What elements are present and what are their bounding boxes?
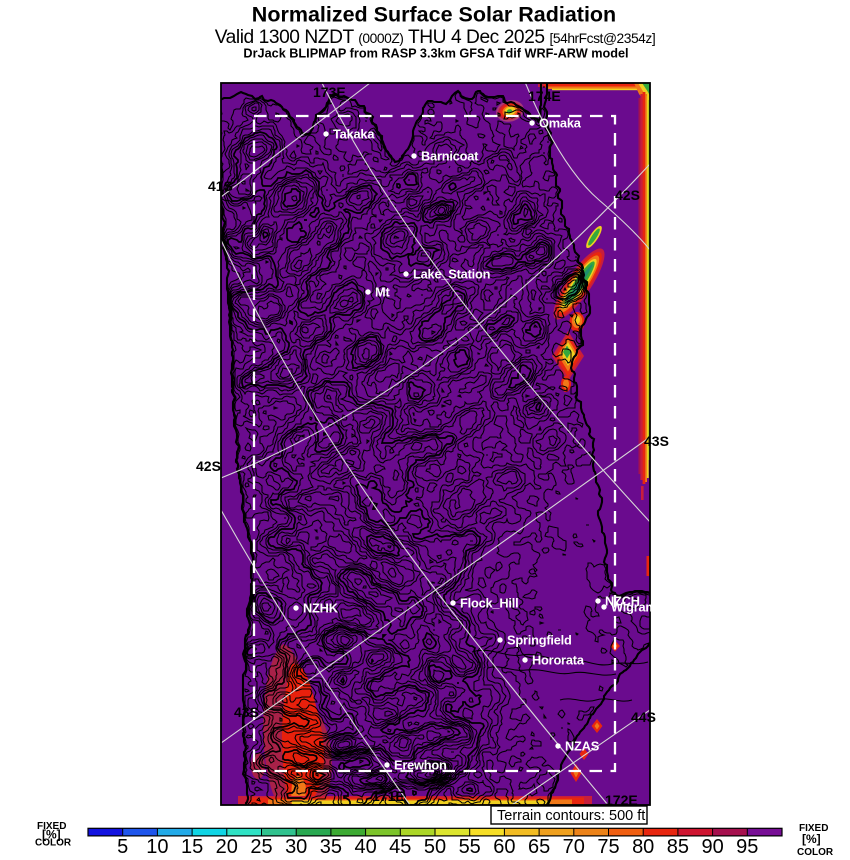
svg-text:Barnicoat: Barnicoat <box>421 149 479 164</box>
svg-text:60: 60 <box>493 836 515 858</box>
svg-text:Valid 1300 NZDT (0000Z) THU 4: Valid 1300 NZDT (0000Z) THU 4 Dec 2025 [… <box>215 27 655 48</box>
svg-text:DrJack BLIPMAP from RASP 3.3km: DrJack BLIPMAP from RASP 3.3km GFSA Tdif… <box>243 47 628 61</box>
svg-text:173E: 173E <box>313 84 346 100</box>
svg-text:35: 35 <box>320 836 342 858</box>
svg-text:Erewhon: Erewhon <box>394 758 447 773</box>
svg-text:80: 80 <box>632 836 654 858</box>
svg-text:10: 10 <box>146 836 168 858</box>
svg-text:Wigram: Wigram <box>611 600 657 615</box>
svg-text:NZHK: NZHK <box>303 601 339 616</box>
svg-text:43S: 43S <box>644 433 669 449</box>
svg-text:5: 5 <box>117 836 128 858</box>
svg-text:41S: 41S <box>208 178 233 194</box>
svg-text:42S: 42S <box>615 187 640 203</box>
svg-text:Normalized Surface Solar Radia: Normalized Surface Solar Radiation <box>252 3 616 27</box>
svg-text:85: 85 <box>667 836 689 858</box>
svg-text:20: 20 <box>216 836 238 858</box>
svg-text:COLOR: COLOR <box>797 847 834 858</box>
svg-text:44S: 44S <box>631 709 656 725</box>
svg-text:95: 95 <box>736 836 758 858</box>
svg-text:40: 40 <box>354 836 376 858</box>
svg-text:COLOR: COLOR <box>35 838 72 849</box>
svg-text:45: 45 <box>389 836 411 858</box>
svg-text:174E: 174E <box>528 88 561 104</box>
svg-text:[%]: [%] <box>802 832 821 846</box>
svg-text:Springfield: Springfield <box>507 633 572 648</box>
svg-text:Omaka: Omaka <box>539 116 582 131</box>
svg-text:Terrain contours: 500 ft: Terrain contours: 500 ft <box>497 808 645 824</box>
svg-text:55: 55 <box>459 836 481 858</box>
svg-text:50: 50 <box>424 836 446 858</box>
svg-text:Lake_Station: Lake_Station <box>413 267 491 282</box>
svg-text:90: 90 <box>701 836 723 858</box>
svg-text:Takaka: Takaka <box>333 127 375 142</box>
svg-text:Mt: Mt <box>375 285 390 300</box>
svg-text:171E: 171E <box>372 788 405 804</box>
svg-text:Hororata: Hororata <box>532 653 585 668</box>
svg-text:NZAS: NZAS <box>565 739 600 754</box>
svg-text:65: 65 <box>528 836 550 858</box>
svg-text:42S: 42S <box>196 458 221 474</box>
svg-text:Flock_Hill: Flock_Hill <box>460 596 518 611</box>
svg-text:25: 25 <box>250 836 272 858</box>
svg-text:15: 15 <box>181 836 203 858</box>
svg-text:30: 30 <box>285 836 307 858</box>
svg-text:75: 75 <box>597 836 619 858</box>
svg-text:43S: 43S <box>234 704 259 720</box>
svg-text:70: 70 <box>563 836 585 858</box>
